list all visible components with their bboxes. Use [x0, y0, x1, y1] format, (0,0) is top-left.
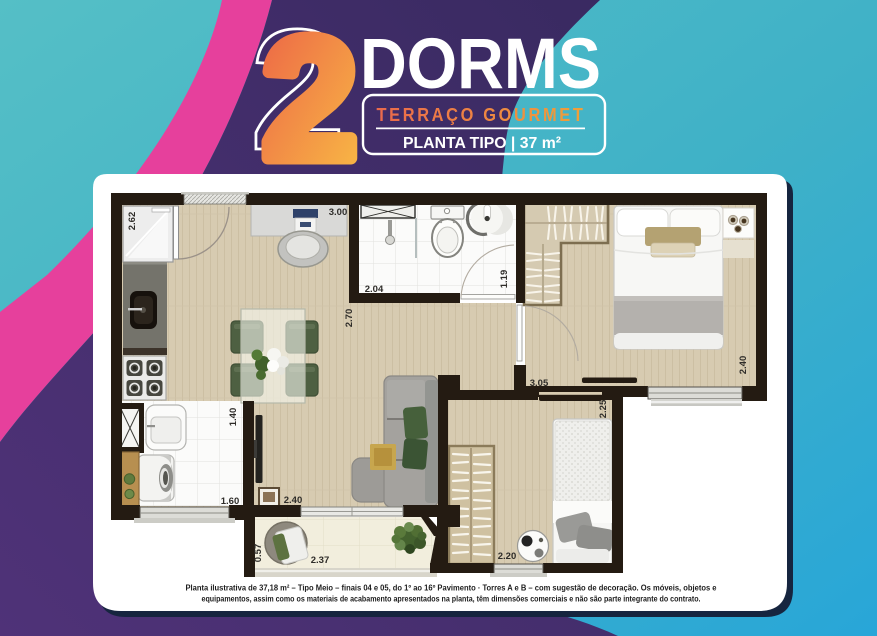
svg-text:DORMS: DORMS [360, 25, 601, 104]
svg-text:2.20: 2.20 [498, 551, 517, 562]
svg-text:0.57: 0.57 [253, 544, 264, 563]
svg-text:2.25: 2.25 [598, 399, 609, 418]
svg-text:TERRAÇO GOURMET: TERRAÇO GOURMET [377, 104, 586, 125]
svg-text:2.04: 2.04 [365, 284, 384, 295]
svg-text:1.40: 1.40 [228, 408, 239, 427]
svg-text:2.37: 2.37 [311, 555, 330, 566]
svg-text:2.40: 2.40 [738, 356, 749, 375]
svg-text:PLANTA TIPO | 37 m²: PLANTA TIPO | 37 m² [403, 135, 561, 152]
svg-text:2: 2 [262, 3, 358, 195]
svg-text:3.00: 3.00 [329, 207, 348, 218]
svg-text:equipamentos, assim como os ma: equipamentos, assim como os materiais de… [202, 595, 701, 604]
svg-text:Planta ilustrativa de 37,18 m²: Planta ilustrativa de 37,18 m² – Tipo Me… [186, 584, 718, 593]
svg-text:1.19: 1.19 [499, 270, 510, 289]
svg-text:2.62: 2.62 [127, 212, 138, 231]
svg-text:2.70: 2.70 [344, 309, 355, 328]
svg-text:3.05: 3.05 [530, 378, 549, 389]
svg-text:2.40: 2.40 [284, 495, 303, 506]
svg-text:1.60: 1.60 [221, 496, 240, 507]
